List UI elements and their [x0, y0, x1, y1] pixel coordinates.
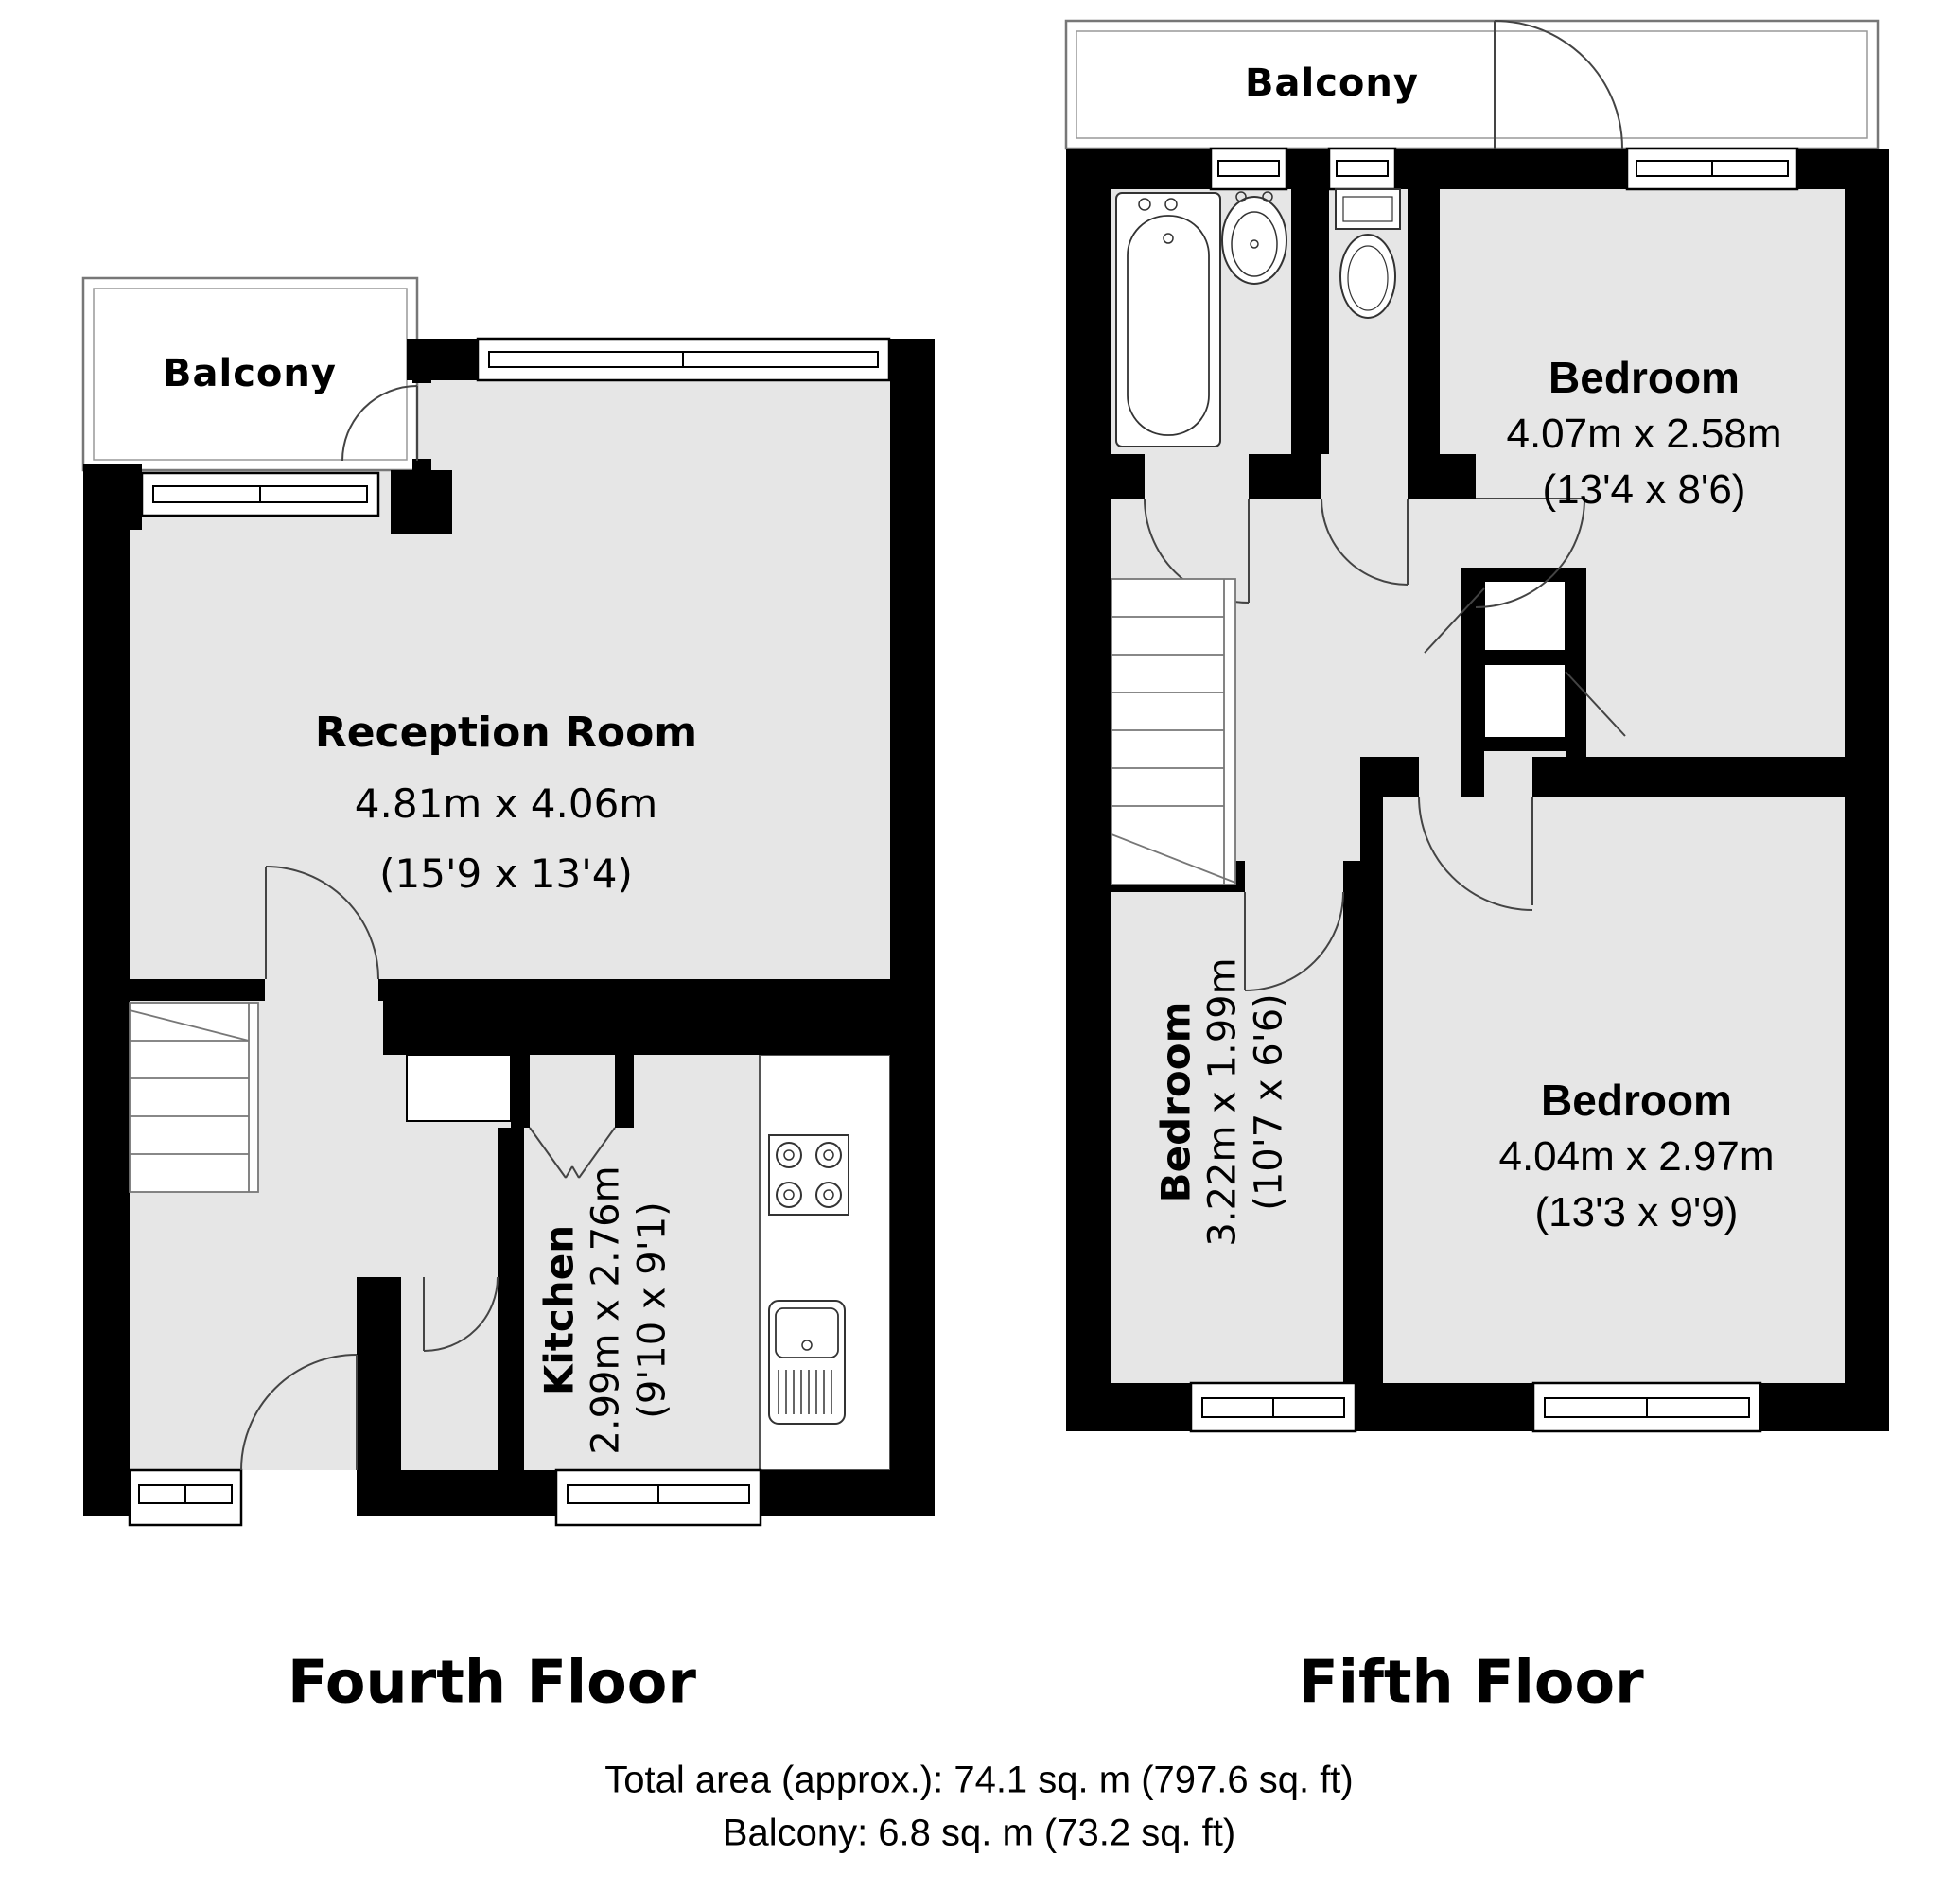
window-icon	[130, 1470, 241, 1525]
window-icon	[1533, 1383, 1760, 1431]
fifth-floor-plan	[1031, 0, 1920, 1457]
balcony4-deck	[83, 278, 417, 470]
fourth-floor-title: Fourth Floor	[288, 1648, 696, 1717]
balcony5-deck	[1066, 21, 1878, 149]
stairs-icon	[1111, 579, 1235, 885]
total-area-text: Total area (approx.): 74.1 sq. m (797.6 …	[604, 1760, 1353, 1802]
window-icon	[1627, 149, 1797, 189]
window-icon	[556, 1470, 761, 1525]
hob-icon	[769, 1135, 849, 1215]
toilet-icon	[1336, 189, 1400, 318]
kitchen-sink-icon	[769, 1301, 845, 1424]
fourth-floor-plan	[57, 265, 955, 1537]
window-icon	[1329, 149, 1395, 189]
window-icon	[142, 473, 378, 516]
window-icon	[1191, 1383, 1356, 1431]
fifth-floor-title: Fifth Floor	[1298, 1648, 1643, 1717]
bath-tub-icon	[1116, 193, 1220, 447]
stairs-icon	[130, 1003, 258, 1192]
hall-cupboard	[407, 1055, 511, 1121]
window-icon	[478, 339, 889, 380]
balcony-area-text: Balcony: 6.8 sq. m (73.2 sq. ft)	[723, 1813, 1235, 1855]
window-icon	[1211, 149, 1286, 189]
floorplan-page: Balcony Reception Room 4.81m x 4.06m (15…	[0, 0, 1960, 1892]
